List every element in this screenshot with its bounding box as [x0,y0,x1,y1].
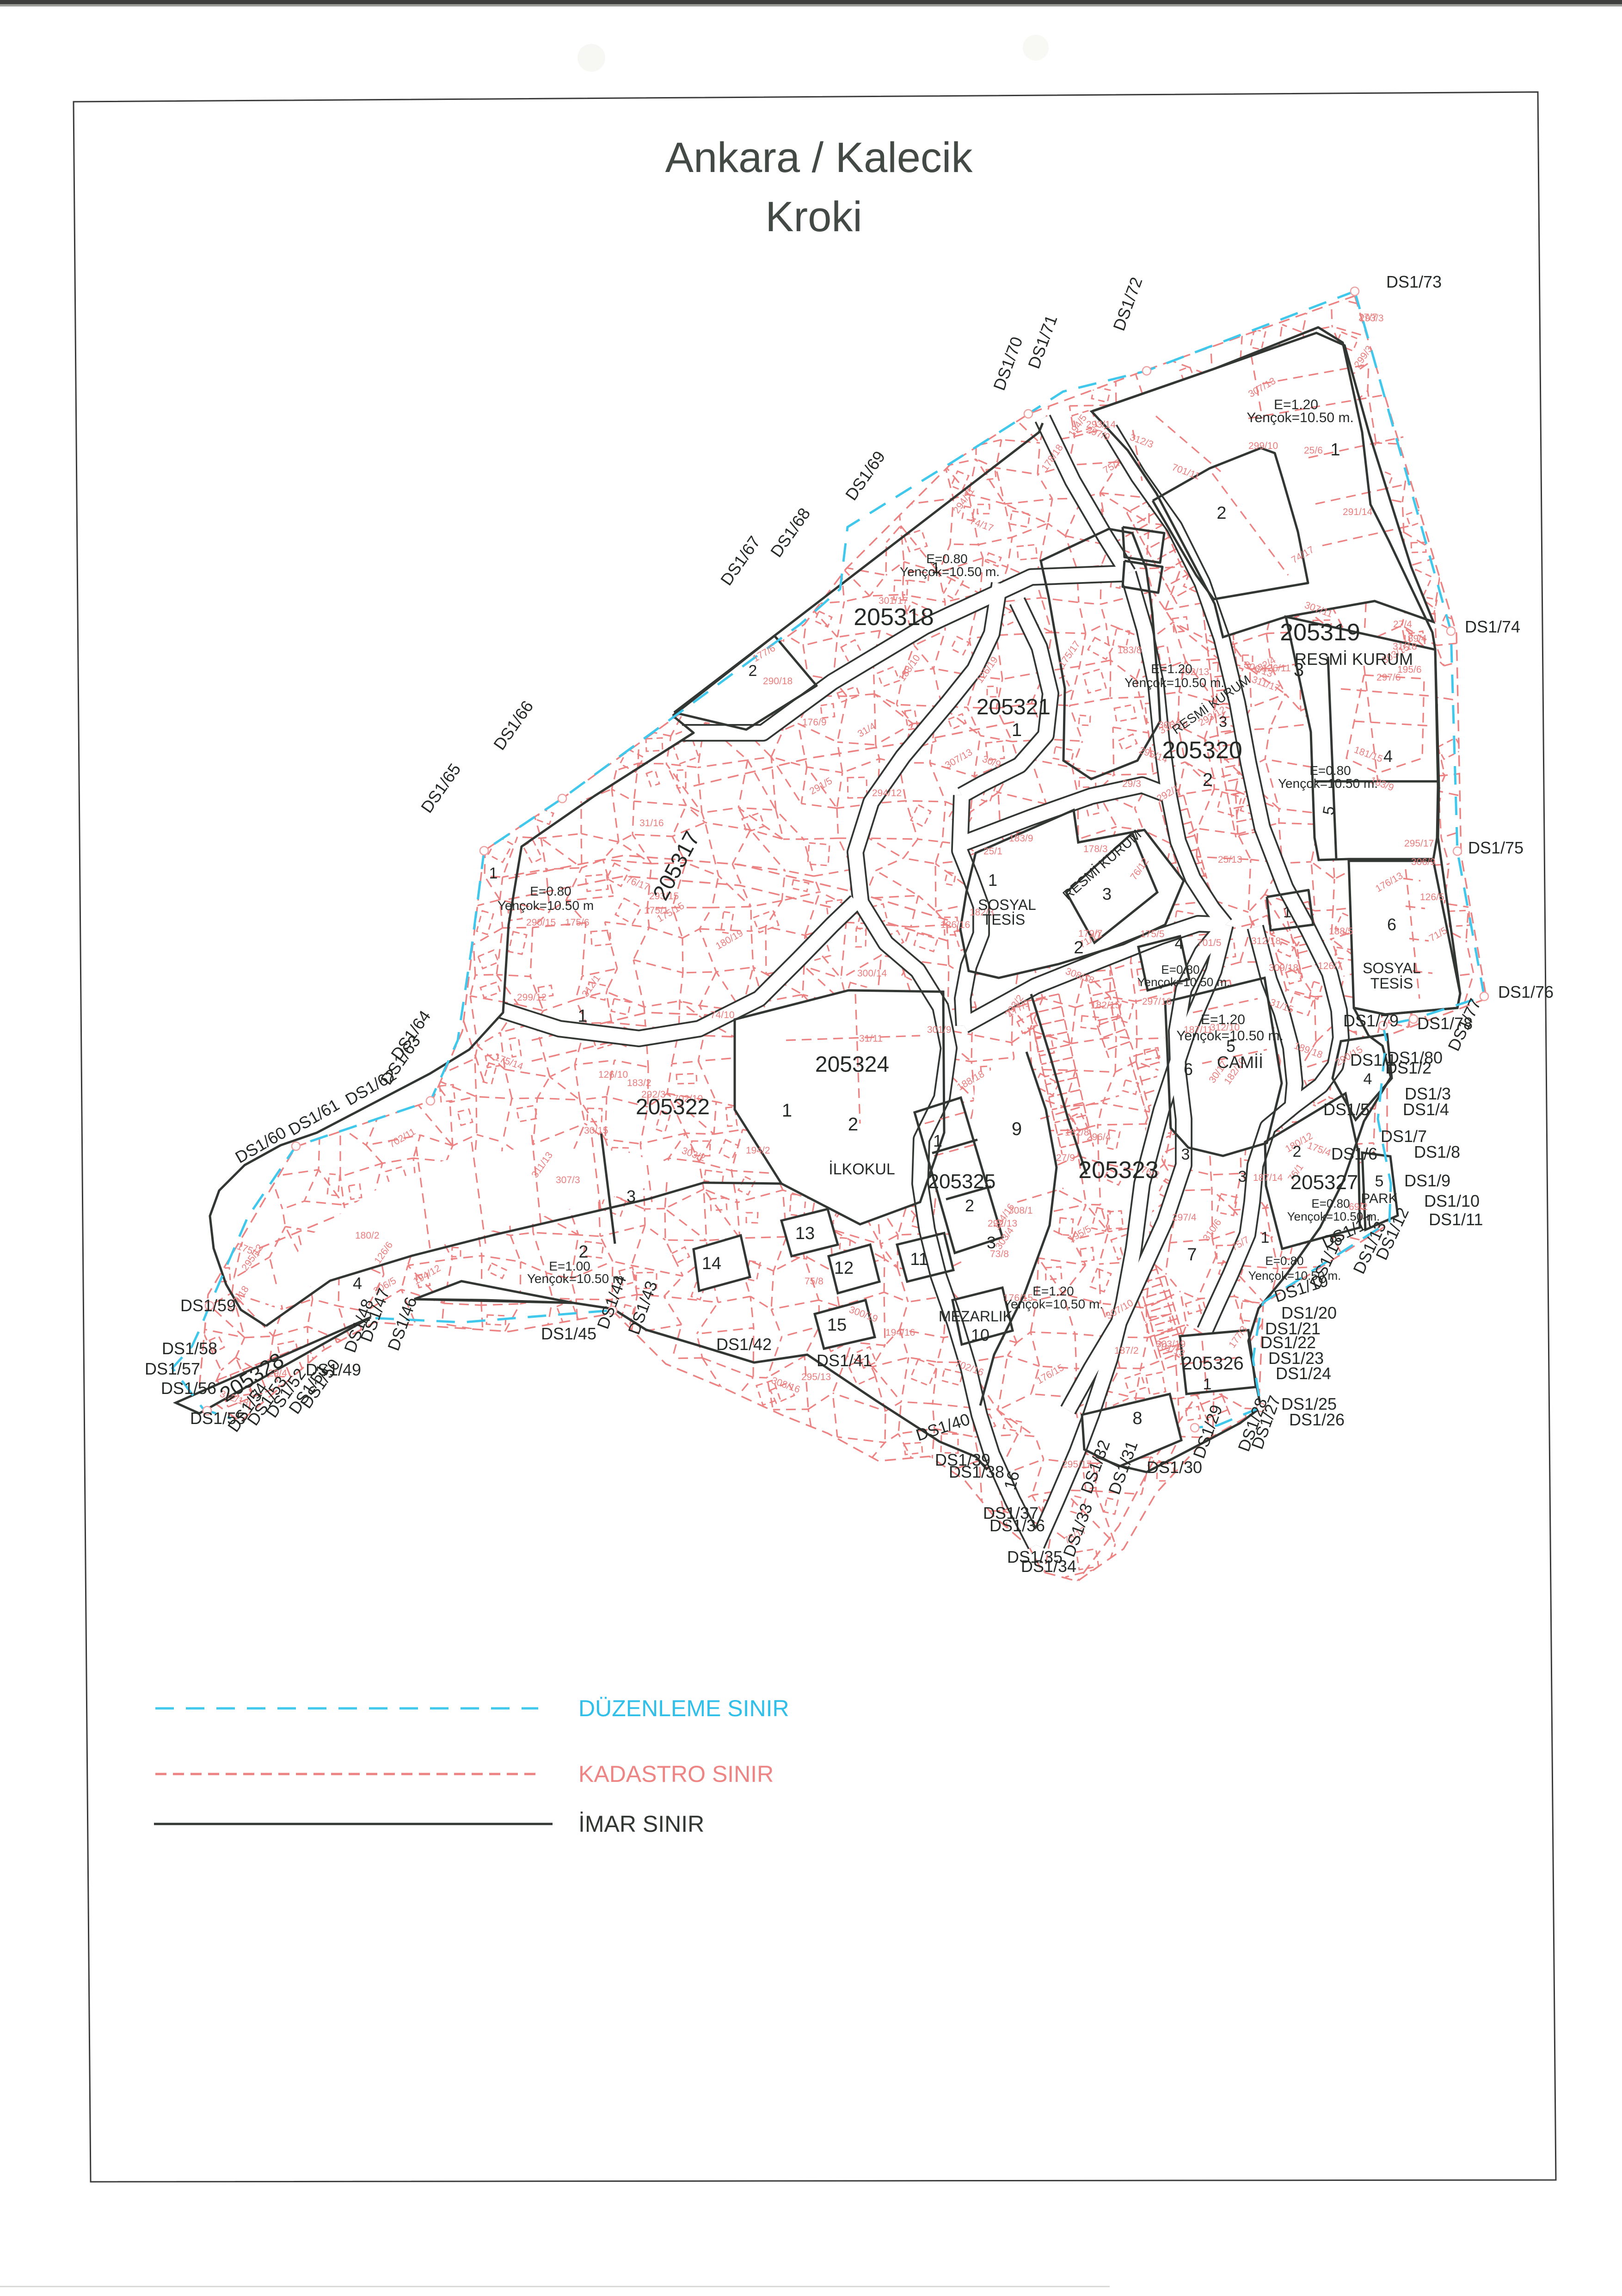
svg-text:DS1/35: DS1/35 [1007,1547,1063,1566]
svg-text:194/16: 194/16 [885,1327,915,1338]
svg-text:3: 3 [1181,1146,1190,1163]
svg-text:Yençok=10.50 m: Yençok=10.50 m [498,898,594,913]
svg-text:1: 1 [578,1007,587,1026]
svg-text:DS1/42: DS1/42 [716,1335,772,1354]
svg-text:Kroki: Kroki [765,193,862,240]
svg-text:14: 14 [702,1254,721,1273]
svg-text:PARK: PARK [1361,1191,1397,1206]
svg-text:DS1/58: DS1/58 [162,1339,217,1358]
svg-text:DS1/33: DS1/33 [1059,1501,1096,1559]
svg-text:3: 3 [1238,1168,1247,1185]
svg-text:3: 3 [627,1187,636,1206]
svg-text:CAMİİ: CAMİİ [1217,1053,1263,1072]
svg-text:297/4: 297/4 [1172,1212,1197,1223]
svg-text:27/7: 27/7 [1358,312,1377,323]
svg-text:205327: 205327 [1290,1171,1358,1194]
svg-text:312/18: 312/18 [1251,936,1281,946]
svg-text:175/6: 175/6 [565,917,590,928]
svg-text:1: 1 [1012,720,1022,740]
svg-text:307/3: 307/3 [556,1175,580,1185]
svg-text:299/10: 299/10 [1248,441,1278,451]
svg-text:183/9: 183/9 [1009,833,1033,844]
svg-text:194/5: 194/5 [1066,413,1089,439]
svg-text:DS1/39: DS1/39 [935,1450,990,1469]
svg-text:31/11: 31/11 [859,1033,883,1044]
svg-text:Yençok=10.50 m.: Yençok=10.50 m. [1278,776,1378,791]
svg-text:75/8: 75/8 [805,1276,823,1287]
svg-text:1: 1 [988,871,997,890]
svg-text:4: 4 [1383,747,1393,766]
svg-text:310/6: 310/6 [1201,1217,1223,1243]
svg-text:187/2: 187/2 [1114,1345,1139,1356]
svg-text:205323: 205323 [1078,1157,1159,1184]
svg-text:DS1/24: DS1/24 [1276,1364,1331,1383]
svg-text:126/7: 126/7 [1318,961,1342,971]
svg-text:DS1/5: DS1/5 [1323,1100,1370,1119]
svg-text:290/18: 290/18 [763,676,793,687]
svg-text:SOSYAL: SOSYAL [978,896,1036,913]
svg-text:DS1/71: DS1/71 [1024,313,1061,371]
svg-text:205322: 205322 [636,1095,710,1119]
svg-text:1: 1 [782,1100,792,1121]
svg-text:Yençok=10.50 m.: Yençok=10.50 m. [1124,675,1224,690]
svg-text:11: 11 [910,1250,928,1269]
svg-text:74/17: 74/17 [968,516,995,534]
svg-text:6: 6 [1387,915,1396,934]
svg-text:4: 4 [1364,1070,1372,1088]
svg-text:2: 2 [1203,770,1213,790]
svg-text:176/9: 176/9 [802,717,827,728]
svg-text:DS1/6: DS1/6 [1331,1144,1377,1163]
svg-text:27/9: 27/9 [1056,1153,1075,1163]
svg-text:DS1/74: DS1/74 [1465,617,1520,636]
svg-text:DS1/30: DS1/30 [1147,1458,1202,1477]
svg-text:3: 3 [987,1233,996,1252]
svg-text:1: 1 [489,865,498,882]
svg-text:126/16: 126/16 [940,920,970,930]
svg-text:3: 3 [1219,713,1227,730]
svg-text:126/5: 126/5 [1420,892,1444,902]
svg-text:E=0.80: E=0.80 [1309,763,1351,778]
svg-text:12: 12 [834,1259,854,1278]
svg-text:1: 1 [1330,440,1340,460]
svg-text:205321: 205321 [977,695,1051,719]
svg-text:309/18: 309/18 [1269,963,1298,973]
svg-text:RESMİ KURUM: RESMİ KURUM [1295,650,1413,669]
svg-text:308/16: 308/16 [770,1375,801,1395]
svg-text:30/9: 30/9 [981,754,1002,770]
svg-text:DS1/56: DS1/56 [161,1379,216,1398]
svg-text:E=0.80: E=0.80 [926,552,968,566]
svg-text:DS1/70: DS1/70 [989,334,1026,393]
svg-text:DS1/2: DS1/2 [1385,1058,1432,1077]
svg-text:DS1/76: DS1/76 [1498,982,1554,1001]
svg-text:13: 13 [795,1224,815,1243]
svg-text:9: 9 [1012,1119,1022,1139]
svg-text:KADASTRO SINIR: KADASTRO SINIR [578,1761,774,1787]
svg-text:1: 1 [1283,904,1291,921]
svg-text:DS1/55: DS1/55 [190,1409,246,1428]
svg-text:29/3: 29/3 [1122,779,1141,789]
svg-text:175/15: 175/15 [655,900,686,924]
svg-text:1: 1 [1203,1375,1212,1393]
svg-text:290/15: 290/15 [526,917,556,928]
svg-text:DS1/72: DS1/72 [1109,275,1146,333]
svg-text:183/2: 183/2 [627,1078,651,1088]
svg-text:DS1/45: DS1/45 [541,1324,596,1343]
svg-text:Yençok=10.50 m.: Yençok=10.50 m. [1137,975,1230,989]
svg-text:194/2: 194/2 [746,1145,770,1156]
svg-text:205320: 205320 [1162,737,1242,764]
svg-text:205318: 205318 [854,604,934,631]
svg-text:DÜZENLEME SINIR: DÜZENLEME SINIR [578,1695,789,1721]
svg-text:702/11: 702/11 [387,1126,418,1150]
svg-text:DS1/68: DS1/68 [767,504,814,561]
svg-text:25/13: 25/13 [1218,854,1242,865]
svg-text:Yençok=10.50 m.: Yençok=10.50 m. [1247,410,1354,425]
svg-text:205324: 205324 [815,1052,889,1077]
svg-text:DS1/26: DS1/26 [1289,1410,1345,1429]
svg-text:175/17: 175/17 [1057,639,1082,669]
svg-text:DS1/4: DS1/4 [1403,1100,1449,1119]
svg-text:2: 2 [1074,938,1083,958]
svg-text:1: 1 [933,1131,942,1150]
svg-text:701/5: 701/5 [1197,938,1222,948]
svg-text:180/19: 180/19 [714,927,745,952]
svg-text:205325: 205325 [928,1170,996,1193]
svg-text:15: 15 [827,1315,847,1335]
svg-text:182/15: 182/15 [1091,1000,1120,1011]
svg-text:4: 4 [1175,935,1184,952]
svg-text:TESİS: TESİS [1370,975,1413,992]
svg-text:300/14: 300/14 [857,968,887,979]
svg-text:175/5: 175/5 [1140,929,1165,939]
svg-text:8: 8 [1132,1409,1142,1428]
svg-text:DS1/73: DS1/73 [1386,272,1442,291]
svg-text:DS1/78: DS1/78 [1417,1014,1473,1033]
svg-text:10: 10 [971,1326,989,1344]
svg-text:DS1/37: DS1/37 [983,1504,1038,1522]
svg-text:25/1: 25/1 [983,846,1002,857]
svg-text:194/12: 194/12 [412,1263,442,1287]
svg-text:2: 2 [1293,1143,1302,1160]
svg-text:E=1.20: E=1.20 [1032,1284,1074,1298]
svg-text:DS1/66: DS1/66 [490,697,537,754]
svg-text:306/9: 306/9 [1411,857,1436,867]
svg-text:MEZARLIK: MEZARLIK [939,1308,1013,1325]
svg-text:2: 2 [749,662,757,680]
svg-text:DS1/67: DS1/67 [717,533,764,589]
svg-text:6: 6 [1184,1060,1193,1079]
svg-text:DS1/69: DS1/69 [842,448,889,504]
svg-text:187/14: 187/14 [1253,1173,1283,1183]
svg-text:31/4: 31/4 [856,721,878,740]
svg-text:SOSYAL: SOSYAL [1363,960,1421,976]
svg-text:3: 3 [1102,884,1112,903]
svg-text:DS1/65: DS1/65 [417,760,464,816]
svg-text:291/14: 291/14 [1343,507,1373,517]
svg-text:27/4: 27/4 [1393,619,1412,630]
svg-text:195/5: 195/5 [1067,1223,1093,1245]
svg-text:2: 2 [965,1196,974,1215]
svg-text:299/3: 299/3 [1352,344,1375,370]
svg-text:25/6: 25/6 [1304,445,1323,456]
svg-text:205319: 205319 [1280,619,1360,646]
svg-text:Ankara / Kalecik: Ankara / Kalecik [665,134,973,181]
svg-text:3: 3 [1294,660,1304,680]
svg-text:205326: 205326 [1182,1353,1243,1374]
svg-text:312/1: 312/1 [580,973,602,999]
svg-text:E=1.20: E=1.20 [1201,1012,1245,1027]
svg-text:301/9: 301/9 [927,1025,952,1035]
svg-text:175/14: 175/14 [493,1052,525,1072]
svg-text:180/2: 180/2 [355,1230,380,1241]
svg-text:74/10: 74/10 [710,1010,735,1020]
svg-text:DS1/43: DS1/43 [624,1278,661,1337]
svg-text:2: 2 [848,1114,858,1135]
svg-text:E=0.80: E=0.80 [1161,963,1199,976]
svg-text:Yençok=10.50 m.: Yençok=10.50 m. [1003,1297,1103,1311]
svg-text:183/8: 183/8 [1118,645,1142,656]
svg-text:5: 5 [1375,1173,1384,1190]
svg-text:7: 7 [1187,1245,1197,1265]
svg-text:İLKOKUL: İLKOKUL [829,1160,895,1178]
svg-text:İMAR SINIR: İMAR SINIR [578,1811,704,1837]
svg-text:DS1/59: DS1/59 [180,1296,236,1315]
svg-text:DS1/41: DS1/41 [817,1351,872,1370]
svg-text:DS1/10: DS1/10 [1424,1191,1480,1210]
svg-text:DS1/57: DS1/57 [145,1359,200,1378]
svg-text:1: 1 [1261,1229,1270,1246]
svg-text:4: 4 [353,1274,362,1293]
svg-text:297/16: 297/16 [1142,996,1172,1007]
svg-text:182/8: 182/8 [1065,1127,1089,1138]
svg-text:TESİS: TESİS [983,911,1025,928]
svg-text:294/12: 294/12 [872,788,902,798]
svg-text:307/13: 307/13 [943,747,974,771]
svg-text:126/10: 126/10 [598,1069,628,1080]
svg-text:30/15: 30/15 [584,1125,608,1136]
svg-text:E=1.20: E=1.20 [1151,662,1192,676]
svg-text:DS1/79: DS1/79 [1343,1011,1399,1030]
svg-text:E=0.80: E=0.80 [1311,1197,1350,1210]
svg-text:299/12: 299/12 [517,992,547,1003]
svg-text:31/16: 31/16 [639,818,664,829]
svg-text:295/17: 295/17 [1404,838,1434,849]
svg-text:DS1/9: DS1/9 [1404,1171,1450,1190]
svg-text:DS1/75: DS1/75 [1468,838,1524,857]
svg-text:295/13: 295/13 [801,1372,831,1382]
svg-text:291/5: 291/5 [808,775,834,797]
svg-text:DS1/11: DS1/11 [1429,1210,1483,1229]
svg-text:296/4: 296/4 [1087,1132,1111,1142]
svg-text:2: 2 [1216,503,1226,523]
svg-text:E=0.80: E=0.80 [1265,1254,1303,1268]
svg-text:DS1/40: DS1/40 [914,1410,972,1445]
svg-text:E=0.80: E=0.80 [530,884,571,898]
svg-text:Yençok=10.50 m.: Yençok=10.50 m. [900,565,1000,579]
svg-text:188/5: 188/5 [1329,926,1353,937]
svg-text:DS1/8: DS1/8 [1414,1142,1460,1161]
